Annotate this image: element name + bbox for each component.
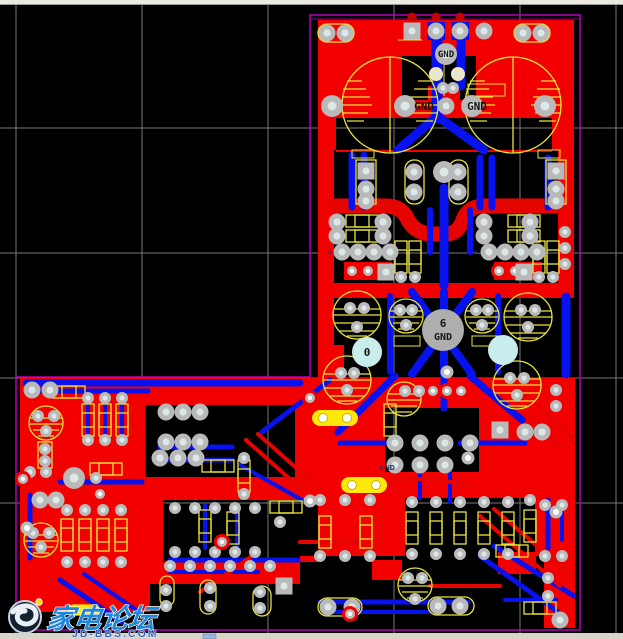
pad[interactable] [547,271,559,283]
pad[interactable] [550,400,562,412]
pad[interactable] [192,404,209,421]
pad[interactable] [387,435,404,452]
net-label-gnd-small: GND [379,465,395,472]
pad[interactable] [40,466,52,478]
pad[interactable] [169,546,181,558]
wire-jumper[interactable] [312,410,358,426]
pad[interactable] [329,228,346,245]
pad[interactable] [249,502,261,514]
pad[interactable] [274,516,286,528]
pad[interactable] [542,590,554,602]
pad[interactable] [339,550,351,562]
pad[interactable] [456,13,465,22]
pad[interactable] [358,302,370,314]
via[interactable] [462,452,475,465]
pad[interactable] [229,502,241,514]
pad[interactable] [548,193,565,210]
watermark: 家电论坛 JD-BBS.COM [9,599,161,639]
pad[interactable] [341,384,353,396]
pad[interactable] [32,410,44,422]
resistor[interactable] [454,512,466,544]
pad[interactable] [175,434,192,451]
gnd-power-pad[interactable] [422,309,464,351]
pad[interactable] [43,527,55,539]
pad[interactable] [238,488,250,500]
pad[interactable] [406,164,423,181]
pad[interactable] [61,556,73,568]
pad[interactable] [476,228,493,245]
pad[interactable] [447,82,459,94]
pad[interactable] [42,382,59,399]
pad[interactable] [189,546,201,558]
pad[interactable] [79,504,91,516]
via[interactable] [214,534,230,550]
pad[interactable] [90,472,102,484]
pad[interactable] [319,25,336,42]
pad[interactable] [438,98,455,115]
pad[interactable] [430,496,442,508]
resistor[interactable] [409,241,421,273]
pad[interactable] [522,228,539,245]
via[interactable] [453,383,469,399]
pad[interactable] [321,95,343,117]
pad[interactable] [476,23,493,40]
via[interactable] [344,263,360,279]
pad[interactable] [348,367,360,379]
pad[interactable] [492,422,509,439]
pad[interactable] [164,560,176,572]
pad[interactable] [116,392,128,404]
pad[interactable] [395,271,407,283]
pad[interactable] [115,556,127,568]
pad[interactable] [160,600,172,612]
resistor[interactable] [430,512,442,544]
pad[interactable] [314,550,326,562]
pad[interactable] [244,560,256,572]
large-via[interactable] [488,335,518,365]
pad[interactable] [513,244,530,261]
pad[interactable] [452,598,469,615]
pad[interactable] [63,467,85,489]
pcb-editor-window: GND GND GND 6 GND 0 GND M= M= 家电论坛 JD-BB… [0,0,623,639]
pad[interactable] [534,95,556,117]
pad[interactable] [559,258,571,270]
via[interactable] [439,383,455,399]
pad[interactable] [515,25,532,42]
pad[interactable] [502,496,514,508]
pad[interactable] [35,541,47,553]
pad[interactable] [39,455,51,467]
pad[interactable] [529,244,546,261]
via[interactable] [15,471,31,487]
pad[interactable] [478,548,490,560]
pad[interactable] [32,492,49,509]
via[interactable] [491,263,507,279]
net-label-gnd-top: GND [438,50,455,60]
pad[interactable] [470,304,482,316]
pad[interactable] [478,496,490,508]
pad[interactable] [79,556,91,568]
net-mark-right: M= [473,250,481,257]
pad[interactable] [416,572,428,584]
pad[interactable] [529,304,541,316]
pad[interactable] [451,67,465,81]
net-label-gnd-right: GND [467,100,487,113]
pad[interactable] [432,13,441,22]
pad[interactable] [462,435,479,452]
pad[interactable] [450,164,467,181]
pad[interactable] [158,434,175,451]
pad[interactable] [115,504,127,516]
pad[interactable] [229,546,241,558]
pad[interactable] [402,572,414,584]
resistor[interactable] [406,512,418,544]
pad-number-0: 0 [364,346,371,359]
pad[interactable] [406,184,423,201]
pad[interactable] [517,424,534,441]
gnd-pad[interactable] [394,95,416,117]
via[interactable] [550,506,563,519]
pad[interactable] [224,560,236,572]
pad[interactable] [204,582,216,594]
pad[interactable] [358,193,375,210]
pad[interactable] [40,425,52,437]
pad-number-6: 6 [440,317,447,330]
net-label-gnd-left: GND [414,100,434,113]
pad[interactable] [552,612,569,629]
pad[interactable] [539,550,551,562]
pad[interactable] [189,502,201,514]
pad[interactable] [344,302,356,314]
pad[interactable] [454,548,466,560]
pcb-canvas[interactable]: GND GND GND 6 GND 0 GND M= M= 家电论坛 JD-BB… [0,0,623,639]
pad[interactable] [158,404,175,421]
pad[interactable] [254,602,266,614]
silk-rect [394,336,420,346]
pad[interactable] [238,452,250,464]
pad[interactable] [412,457,429,474]
via[interactable] [360,263,376,279]
pad[interactable] [412,435,429,452]
pad[interactable] [516,264,533,281]
pad[interactable] [204,560,216,572]
pad[interactable] [550,384,562,396]
pad[interactable] [192,434,209,451]
pad[interactable] [276,578,293,595]
pad[interactable] [409,271,421,283]
pad[interactable] [160,584,172,596]
pad[interactable] [430,548,442,560]
pad[interactable] [204,600,216,612]
pad[interactable] [48,492,65,509]
pad[interactable] [542,572,554,584]
pad[interactable] [169,502,181,514]
resistor[interactable] [547,241,559,273]
pad[interactable] [99,434,111,446]
pad[interactable] [511,389,523,401]
pad[interactable] [351,321,363,333]
pad[interactable] [320,599,337,616]
pad[interactable] [184,560,196,572]
pad[interactable] [522,321,534,333]
pad[interactable] [430,598,447,615]
pad[interactable] [375,228,392,245]
pad[interactable] [364,494,376,506]
logo-sparkle-icon [36,599,42,605]
pad[interactable] [61,504,73,516]
pad[interactable] [99,392,111,404]
pad[interactable] [339,494,351,506]
pad[interactable] [454,496,466,508]
pad[interactable] [502,548,514,560]
pad[interactable] [170,450,187,467]
pad[interactable] [400,319,412,331]
pad[interactable] [437,457,454,474]
pad[interactable] [399,385,411,397]
pad[interactable] [452,23,469,40]
pad[interactable] [358,163,375,180]
pad[interactable] [515,304,527,316]
pad[interactable] [97,556,109,568]
pad[interactable] [559,242,571,254]
pad[interactable] [364,550,376,562]
pad[interactable] [533,25,550,42]
pad[interactable] [518,372,530,384]
pad[interactable] [264,560,276,572]
pad[interactable] [481,244,498,261]
pad[interactable] [394,304,406,316]
pad[interactable] [152,450,169,467]
pad[interactable] [334,244,351,261]
pad[interactable] [24,382,41,399]
pad[interactable] [254,586,266,598]
pad[interactable] [482,304,494,316]
pad[interactable] [428,23,445,40]
pad[interactable] [209,502,221,514]
taskbar-icon[interactable] [203,634,216,639]
pad[interactable] [413,385,425,397]
via[interactable] [21,522,34,535]
via[interactable] [441,366,454,379]
pad[interactable] [533,271,545,283]
pad[interactable] [337,25,354,42]
pad[interactable] [476,319,488,331]
pad[interactable] [409,593,421,605]
net-mark-left: M= [327,250,335,257]
pad[interactable] [350,244,367,261]
pad[interactable] [406,496,418,508]
pad[interactable] [539,499,551,511]
pad[interactable] [378,264,395,281]
pad[interactable] [534,424,551,441]
pad[interactable] [82,434,94,446]
pad[interactable] [335,367,347,379]
pad[interactable] [314,494,326,506]
pad[interactable] [82,392,94,404]
watermark-site-url: JD-BBS.COM [72,628,159,639]
pad[interactable] [504,372,516,384]
pad[interactable] [116,434,128,446]
pad[interactable] [97,504,109,516]
pad[interactable] [175,404,192,421]
resistor[interactable] [346,230,378,242]
net-label-gnd-center: GND [434,332,452,343]
pad[interactable] [188,450,205,467]
pad[interactable] [548,163,565,180]
pad[interactable] [366,244,383,261]
pad[interactable] [48,410,60,422]
via[interactable] [92,486,108,502]
pad[interactable] [406,548,418,560]
pad[interactable] [559,226,571,238]
pad[interactable] [39,443,51,455]
via[interactable] [425,383,441,399]
wire-jumper[interactable] [341,477,387,493]
pad[interactable] [556,550,568,562]
pad[interactable] [406,304,418,316]
via[interactable] [302,390,318,406]
resistor[interactable] [346,215,378,227]
pad[interactable] [429,67,443,81]
pad[interactable] [382,244,399,261]
pad[interactable] [524,494,536,506]
via[interactable] [342,606,358,622]
pad[interactable] [408,13,417,22]
pad[interactable] [437,435,454,452]
transistor[interactable] [504,293,552,341]
pad[interactable] [450,184,467,201]
pad[interactable] [497,244,514,261]
pad[interactable] [249,546,261,558]
pad[interactable] [404,23,421,40]
